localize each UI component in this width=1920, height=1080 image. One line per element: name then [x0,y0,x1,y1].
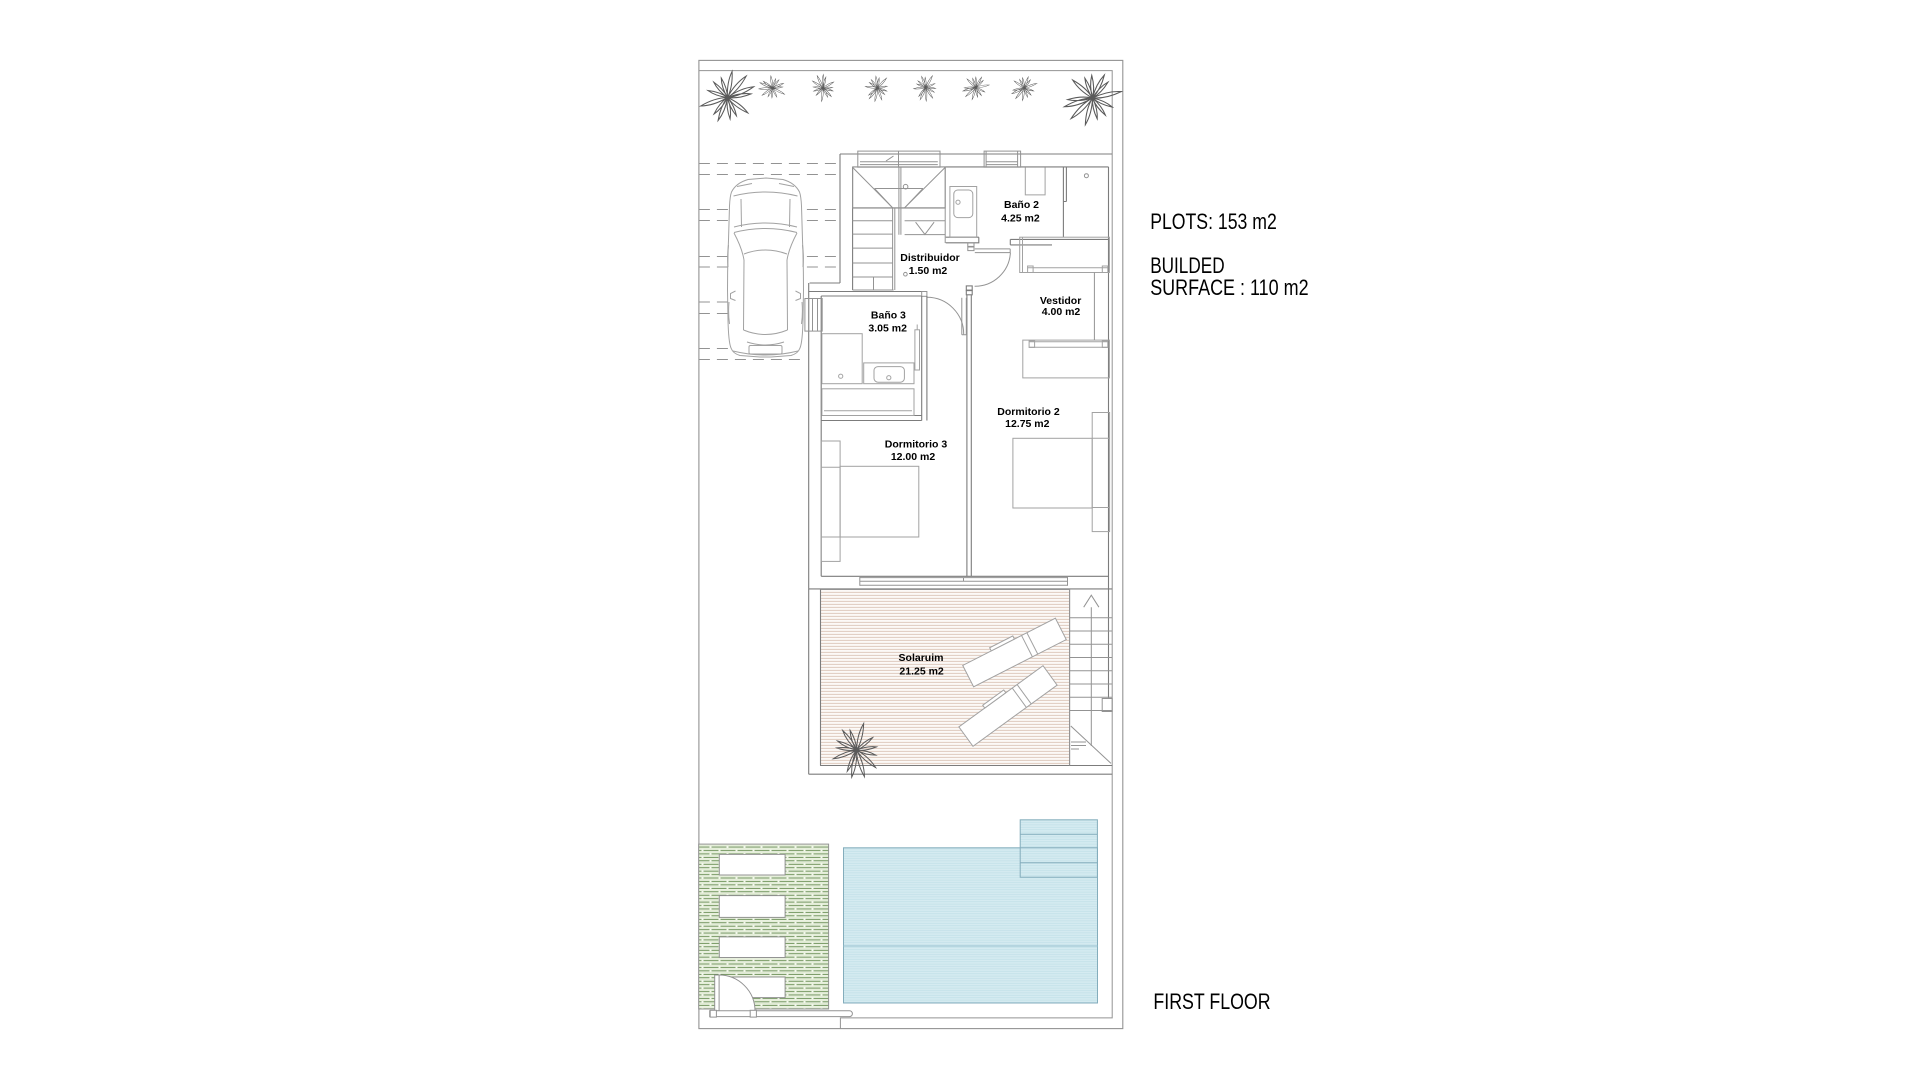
svg-text:12.00 m2: 12.00 m2 [891,451,936,463]
svg-text:4.25 m2: 4.25 m2 [1001,212,1040,224]
svg-text:PLOTS: 153 m2: PLOTS: 153 m2 [1150,209,1277,234]
svg-text:FIRST FLOOR: FIRST FLOOR [1153,989,1270,1014]
svg-text:BUILDED: BUILDED [1150,253,1224,278]
svg-text:SURFACE : 110 m2: SURFACE : 110 m2 [1150,275,1308,300]
svg-text:Baño 3: Baño 3 [871,309,906,321]
svg-text:4.00 m2: 4.00 m2 [1042,306,1081,318]
svg-text:12.75 m2: 12.75 m2 [1005,418,1050,430]
svg-text:Baño 2: Baño 2 [1004,199,1039,211]
svg-text:Dormitorio 2: Dormitorio 2 [997,406,1060,418]
svg-text:21.25 m2: 21.25 m2 [899,665,944,677]
svg-text:Solaruim: Solaruim [899,652,944,664]
svg-text:3.05 m2: 3.05 m2 [868,323,907,335]
svg-text:1.50 m2: 1.50 m2 [909,265,948,277]
svg-text:Distribuidor: Distribuidor [900,252,960,264]
svg-text:Dormitorio 3: Dormitorio 3 [885,439,948,451]
